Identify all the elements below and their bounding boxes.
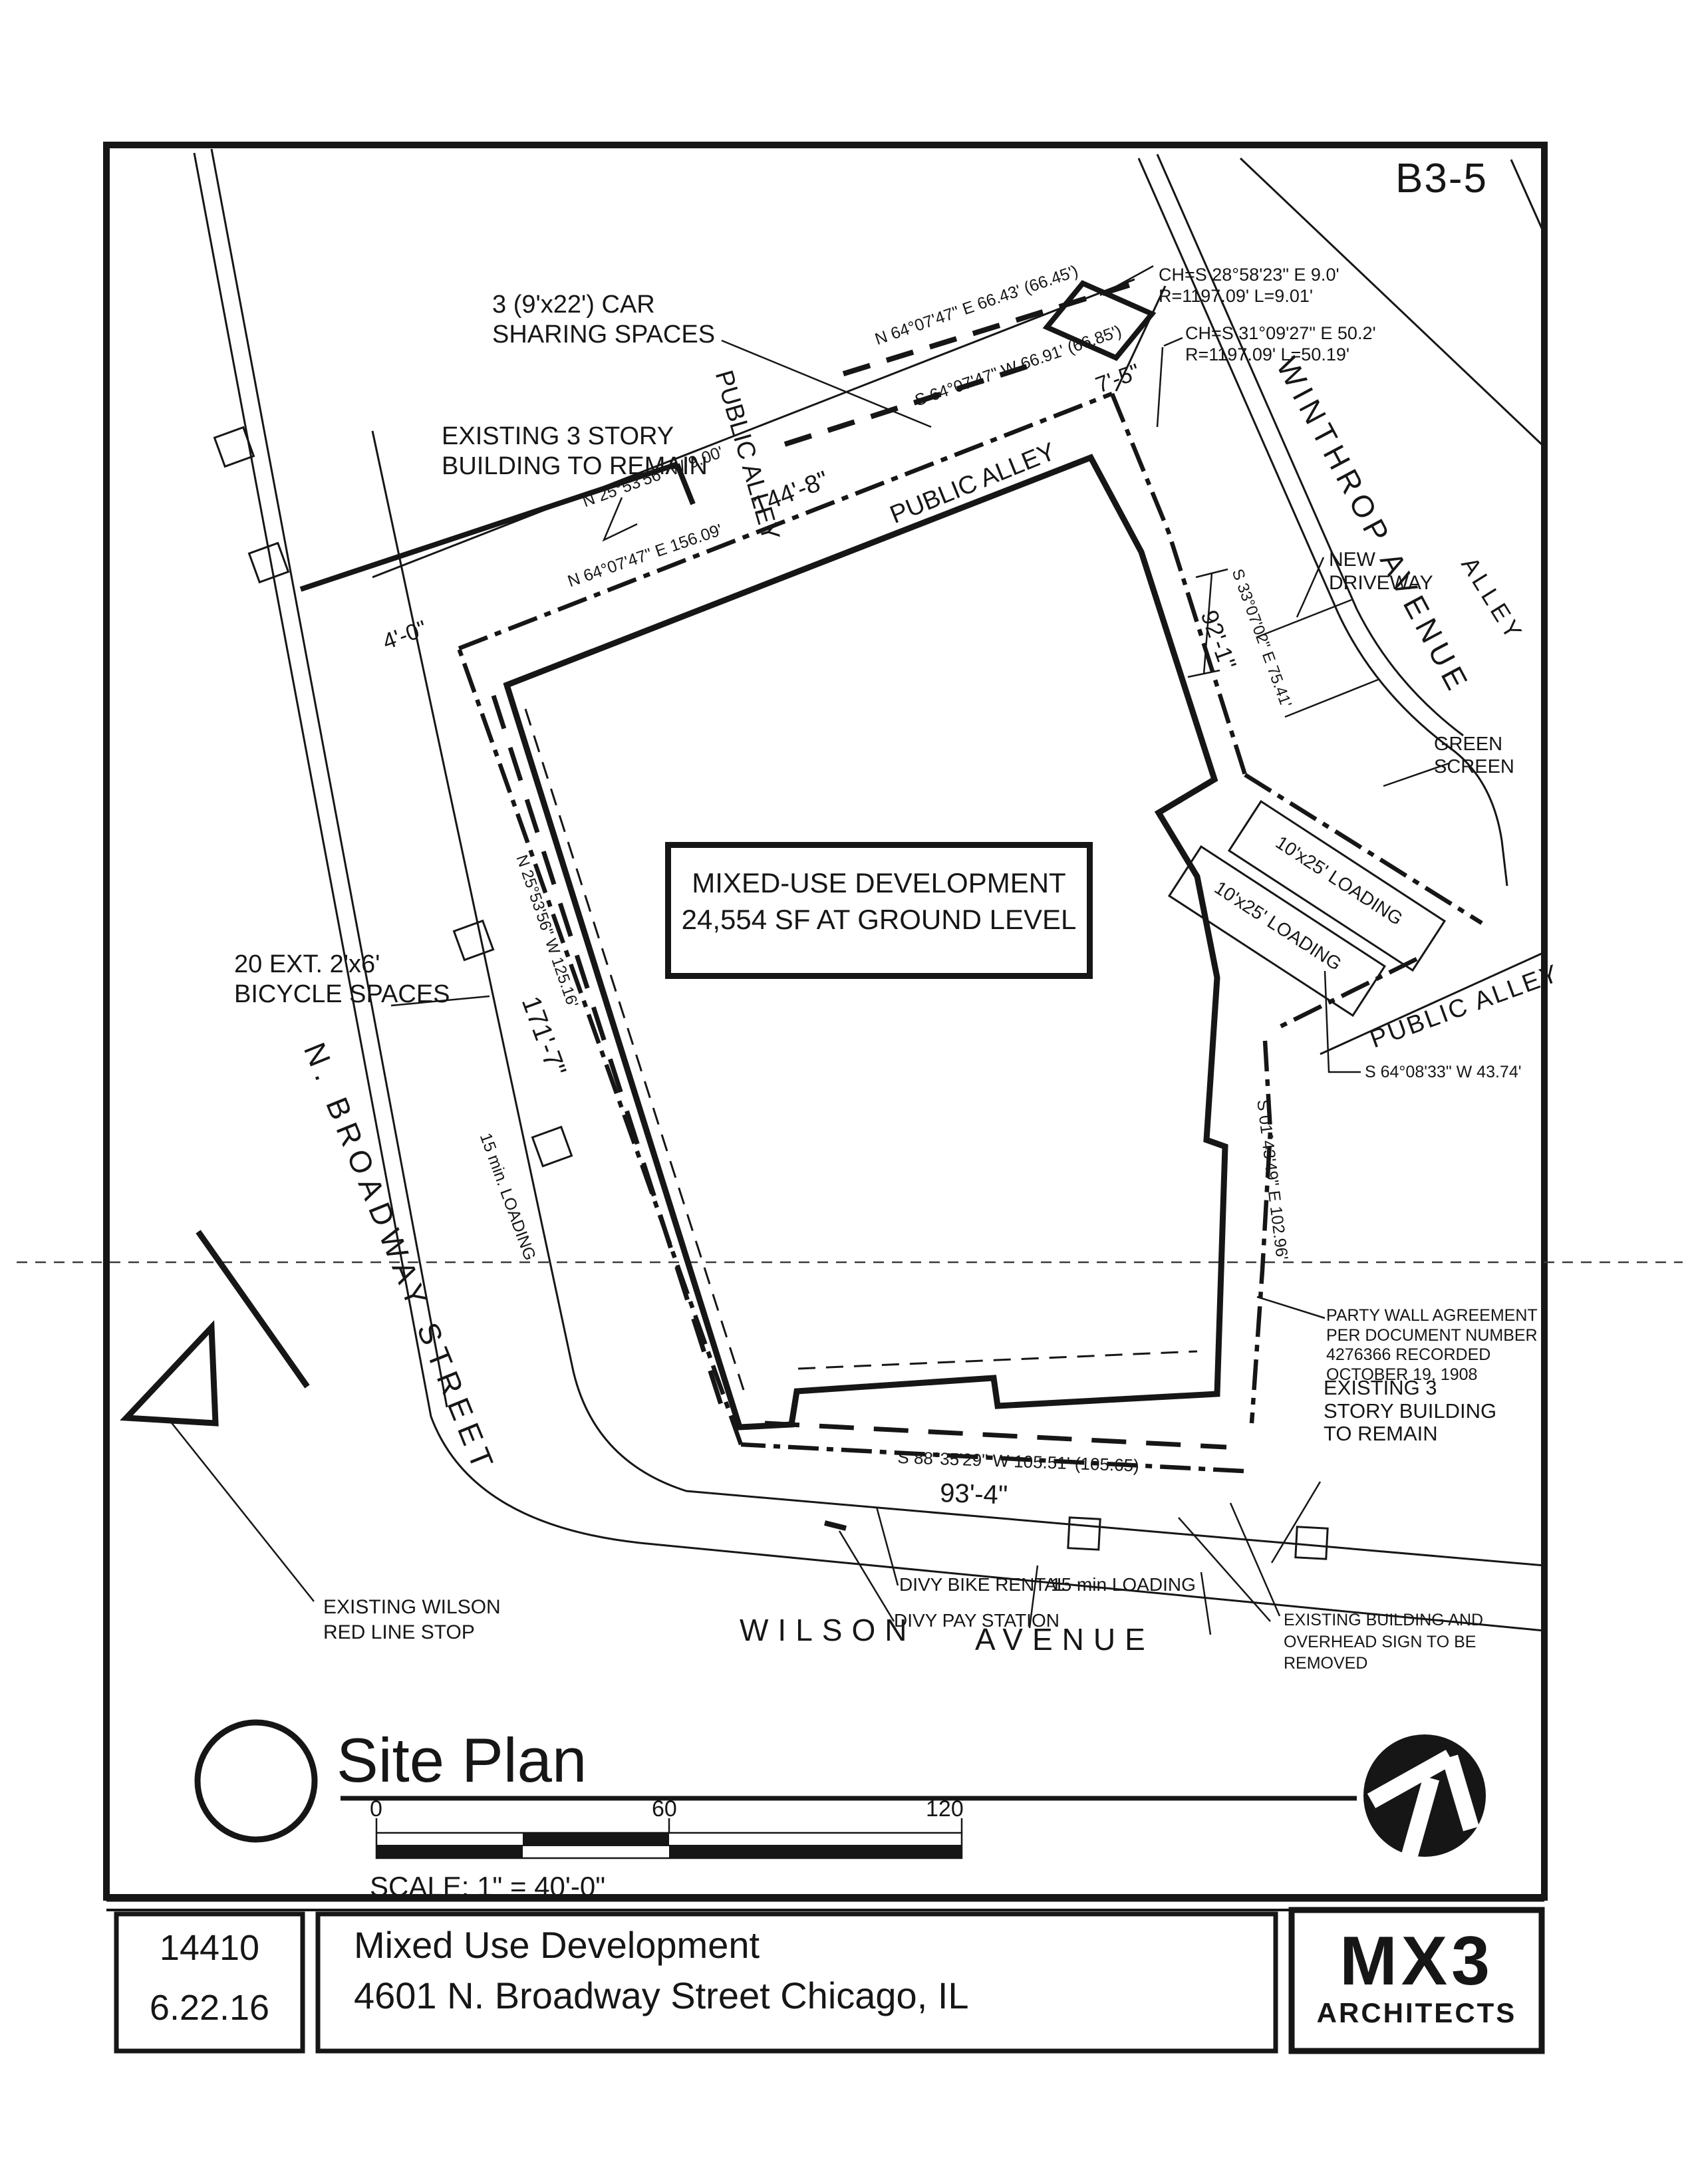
scale-tick-0: 0 [370,1796,382,1822]
wilson-avenue-label-1: WILSON [740,1612,916,1648]
scale-bar [376,1818,962,1858]
red-line-stop-line1: EXISTING WILSON [323,1595,501,1620]
red-line-stop-note: EXISTING WILSON RED LINE STOP [323,1595,501,1645]
drawing-title: Site Plan [337,1724,587,1798]
project-name: Mixed Use Development [354,1923,760,1967]
building-removed-line3: REMOVED [1284,1653,1483,1675]
new-driveway-line2: DRIVEWAY [1329,571,1433,595]
curve-data-1-line2: R=1197.09' L=9.01' [1159,286,1339,307]
mixed-use-label-box: MIXED-USE DEVELOPMENT 24,554 SF AT GROUN… [665,842,1093,979]
car-sharing-note-line2: SHARING SPACES [492,320,715,350]
party-wall-line2: PER DOCUMENT NUMBER [1326,1326,1538,1346]
party-wall-line1: PARTY WALL AGREEMENT [1326,1306,1538,1326]
green-screen-note: GREEN SCREEN [1434,733,1514,778]
firm-logo-text: MX3 [1292,1921,1542,2002]
existing-building-topleft-line1: EXISTING 3 STORY [442,422,708,452]
bicycle-note-line1: 20 EXT. 2'x6' [234,950,450,980]
project-address: 4601 N. Broadway Street Chicago, IL [354,1974,969,2018]
bicycle-note: 20 EXT. 2'x6' BICYCLE SPACES [234,950,450,1010]
red-line-stop-line2: RED LINE STOP [323,1620,501,1645]
existing-building-right-line1: EXISTING 3 [1324,1377,1496,1400]
wilson-avenue-label-2: AVENUE [975,1621,1155,1657]
bicycle-note-line2: BICYCLE SPACES [234,980,450,1010]
mixed-use-line2: 24,554 SF AT GROUND LEVEL [671,902,1087,938]
new-driveway-note: NEW DRIVEWAY [1329,548,1433,595]
car-sharing-note: 3 (9'x22') CAR SHARING SPACES [492,290,715,350]
scale-label: SCALE: 1" = 40'-0" [370,1870,605,1903]
dimension-93-4: 93'-4" [939,1478,1008,1512]
sheet-number: B3-5 [1395,154,1488,203]
divy-station-mark [825,1523,846,1528]
loading-15-bottom-label: 15 min LOADING [1051,1573,1196,1595]
site-plan-drawing [0,0,1692,2184]
building-removed-note: EXISTING BUILDING AND OVERHEAD SIGN TO B… [1284,1609,1483,1675]
existing-building-right-line3: TO REMAIN [1324,1423,1496,1446]
building-removed-line1: EXISTING BUILDING AND [1284,1609,1483,1631]
new-driveway-line1: NEW [1329,548,1433,571]
scale-tick-60: 60 [652,1796,677,1822]
project-date: 6.22.16 [116,1987,303,2030]
existing-building-right-line2: STORY BUILDING [1324,1400,1496,1423]
project-number: 14410 [116,1927,303,1970]
party-wall-note: PARTY WALL AGREEMENT PER DOCUMENT NUMBER… [1326,1306,1538,1385]
curve-data-2-line1: CH=S 31°09'27" E 50.2' [1185,323,1376,344]
existing-building-right-note: EXISTING 3 STORY BUILDING TO REMAIN [1324,1377,1496,1446]
site-plan-sheet: B3-5 3 (9'x22') CAR SHARING SPACES EXIST… [0,0,1692,2184]
divy-bike-rental-label: DIVY BIKE RENTAL [899,1573,1067,1595]
north-arrow-icon [1363,1734,1486,1863]
mixed-use-line1: MIXED-USE DEVELOPMENT [671,865,1087,902]
firm-logo-subtext: ARCHITECTS [1292,1996,1542,2030]
car-sharing-note-line1: 3 (9'x22') CAR [492,290,715,320]
scale-tick-120: 120 [926,1796,964,1822]
green-screen-line1: GREEN [1434,733,1514,755]
bearing-s64: S 64°08'33" W 43.74' [1365,1063,1522,1083]
party-wall-line3: 4276366 RECORDED [1326,1345,1538,1365]
curve-data-1: CH=S 28°58'23" E 9.0' R=1197.09' L=9.01' [1159,265,1339,307]
green-screen-line2: SCREEN [1434,755,1514,778]
curve-data-1-line1: CH=S 28°58'23" E 9.0' [1159,265,1339,286]
stall-lines [493,696,1226,1447]
building-removed-line2: OVERHEAD SIGN TO BE [1284,1631,1483,1653]
red-line-stop-triangle [126,1232,307,1423]
curve-data-2: CH=S 31°09'27" E 50.2' R=1197.09' L=50.1… [1185,323,1376,366]
